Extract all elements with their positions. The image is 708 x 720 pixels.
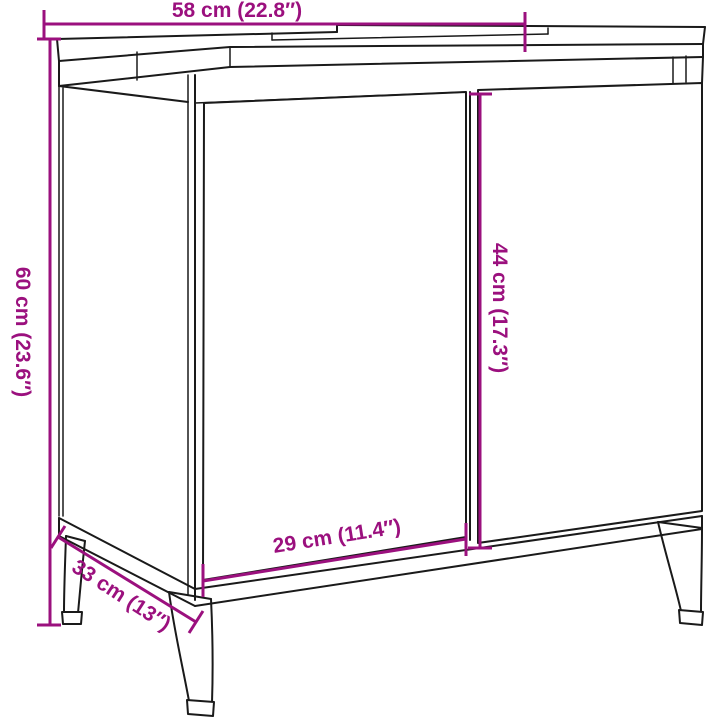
cabinet-line-drawing <box>0 0 708 720</box>
left-door <box>203 92 466 580</box>
carcass-right-edge <box>673 56 703 83</box>
front-right-leg <box>658 522 703 625</box>
left-side-panel <box>59 75 195 606</box>
sink-cutout <box>272 28 548 40</box>
width-dimension-label: 58 cm (22.8″) <box>172 0 302 23</box>
dimension-diagram: 58 cm (22.8″) 60 cm (23.6″) 44 cm (17.3″… <box>0 0 708 720</box>
height-dimension-label: 60 cm (23.6″) <box>10 267 34 397</box>
right-door <box>478 83 702 543</box>
door-height-dimension-label: 44 cm (17.3″) <box>487 243 511 373</box>
top-slab <box>57 25 705 86</box>
